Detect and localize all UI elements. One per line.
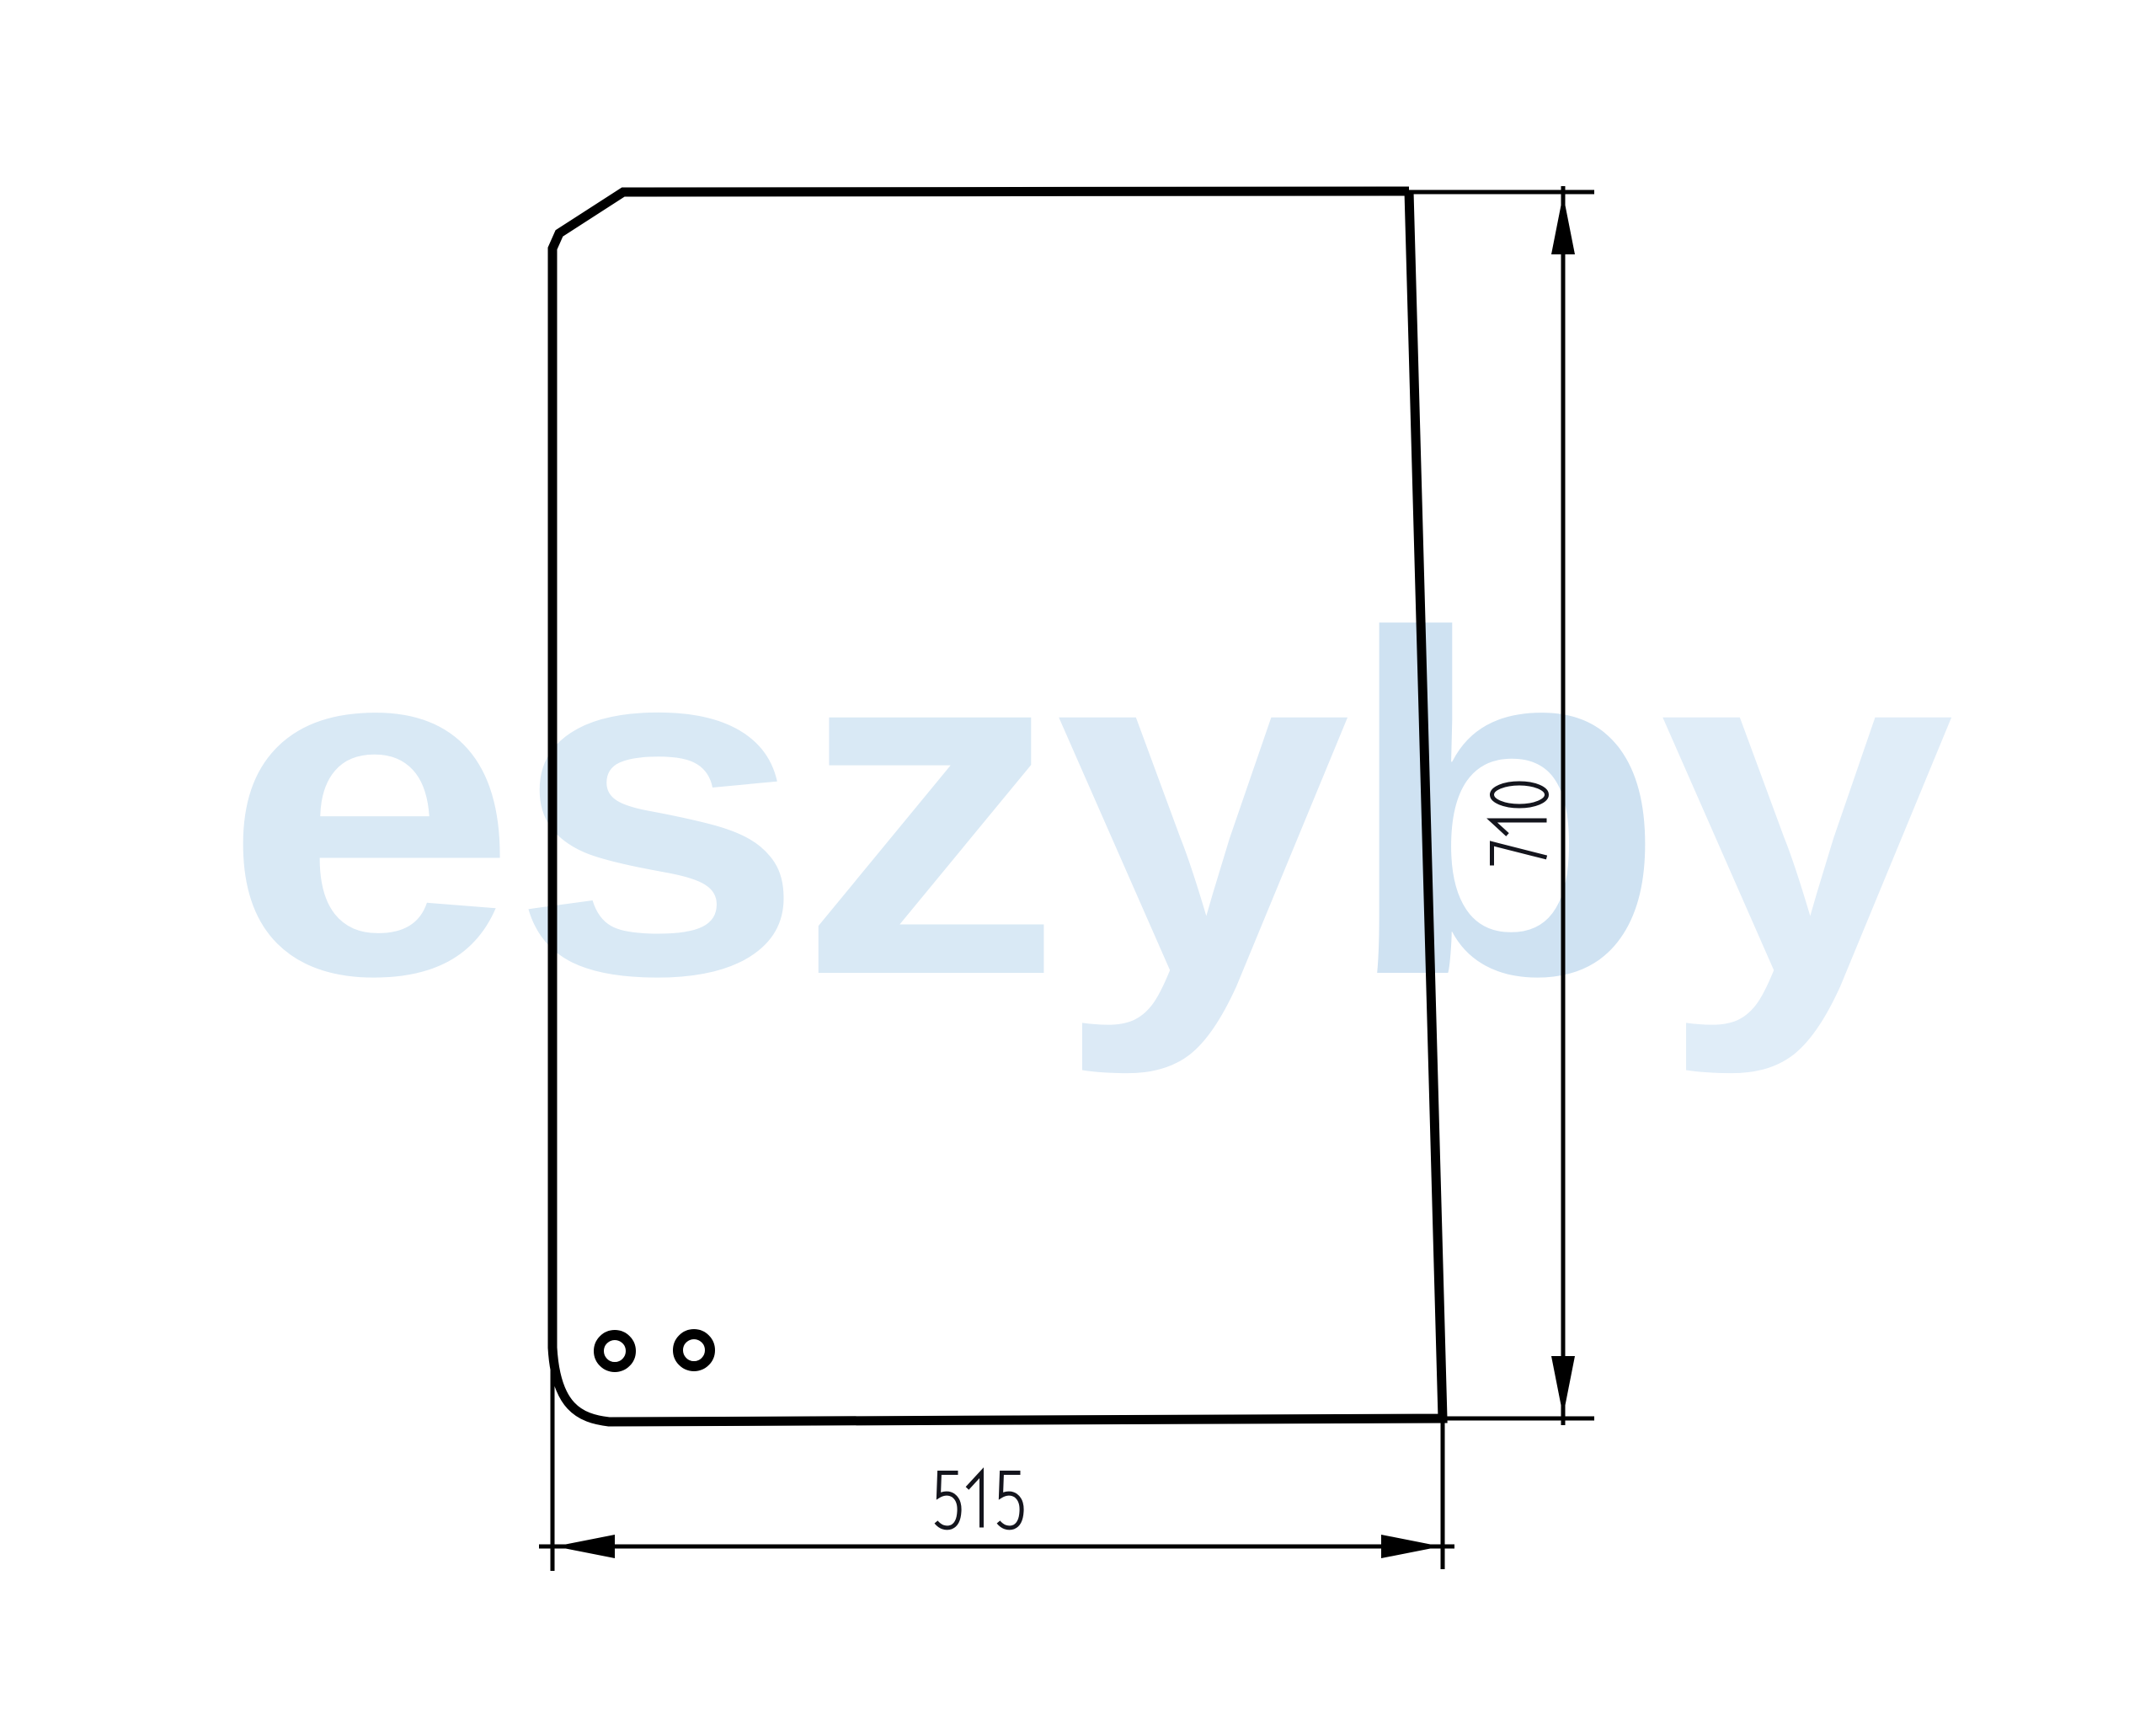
svg-text:eszyby: eszyby (222, 536, 1958, 1079)
